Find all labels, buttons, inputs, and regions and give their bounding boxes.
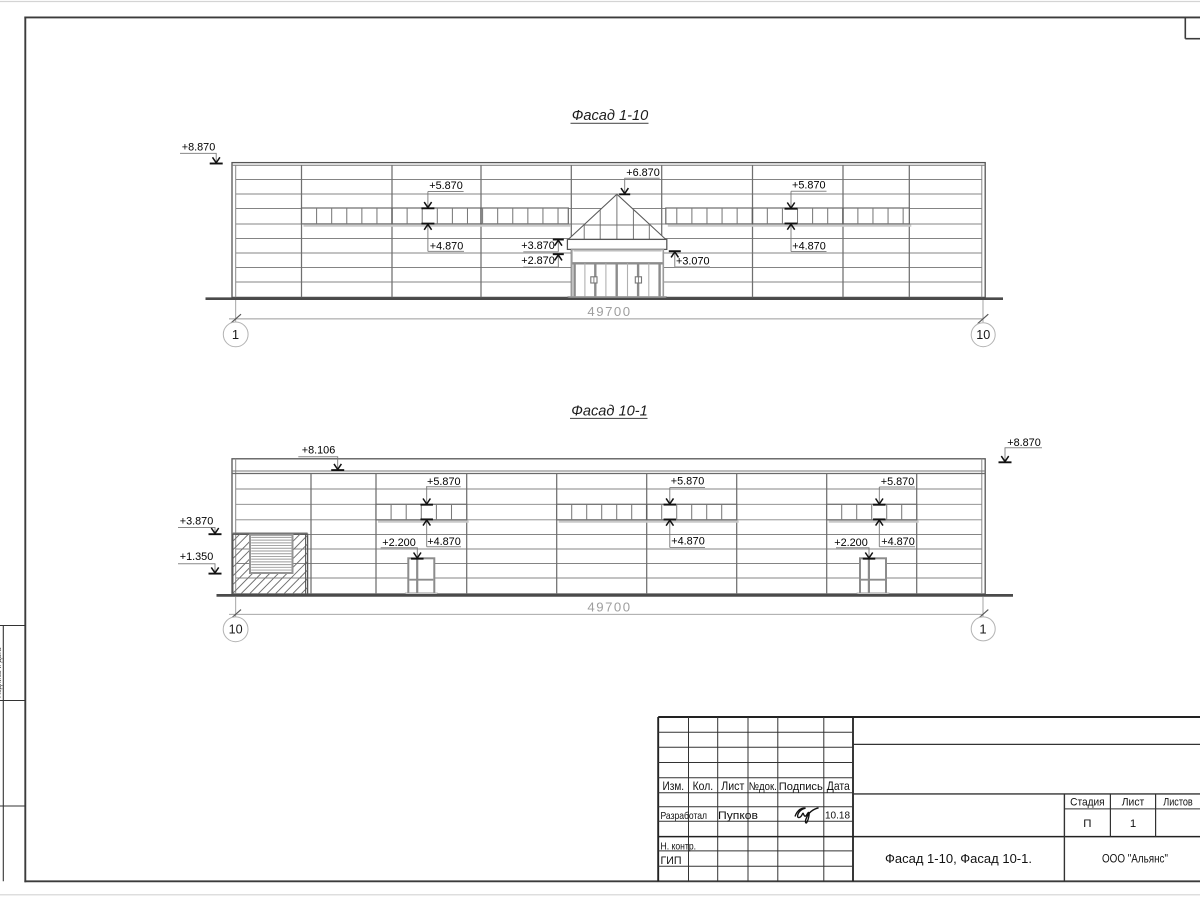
svg-text:+5.870: +5.870 xyxy=(671,475,705,487)
svg-text:ООО "Альянс": ООО "Альянс" xyxy=(1102,852,1168,866)
svg-text:Н. контр.: Н. контр. xyxy=(661,841,697,852)
svg-text:Листов: Листов xyxy=(1163,796,1193,808)
svg-text:49700: 49700 xyxy=(587,304,631,319)
svg-text:+5.870: +5.870 xyxy=(429,180,463,192)
svg-text:П: П xyxy=(1083,818,1091,830)
svg-text:1: 1 xyxy=(979,621,986,636)
svg-text:Лист: Лист xyxy=(721,780,745,793)
svg-text:Фасад 1-10: Фасад 1-10 xyxy=(572,108,648,124)
svg-text:+8.870: +8.870 xyxy=(182,142,216,154)
svg-text:+8.106: +8.106 xyxy=(302,444,336,456)
svg-text:1: 1 xyxy=(1130,818,1136,830)
svg-text:ГИП: ГИП xyxy=(661,855,682,867)
svg-text:Изм.: Изм. xyxy=(663,780,685,793)
svg-text:10: 10 xyxy=(229,623,243,637)
svg-text:+2.870: +2.870 xyxy=(521,255,555,267)
svg-text:Фасад 10-1: Фасад 10-1 xyxy=(571,403,647,419)
svg-text:1: 1 xyxy=(232,327,239,342)
svg-text:+5.870: +5.870 xyxy=(792,180,826,192)
svg-text:Стадия: Стадия xyxy=(1070,796,1105,808)
svg-text:Кол.: Кол. xyxy=(693,780,714,793)
svg-text:+4.870: +4.870 xyxy=(792,240,826,252)
svg-text:+5.870: +5.870 xyxy=(881,476,915,488)
svg-text:Дата: Дата xyxy=(827,780,850,793)
svg-text:Пупков: Пупков xyxy=(718,810,758,822)
svg-text:49700: 49700 xyxy=(587,599,631,614)
svg-text:10: 10 xyxy=(976,328,990,342)
svg-text:+4.870: +4.870 xyxy=(430,240,464,252)
svg-text:Фасад 1-10, Фасад 10-1.: Фасад 1-10, Фасад 10-1. xyxy=(885,851,1032,866)
svg-text:10.18: 10.18 xyxy=(825,810,850,821)
svg-text:+3.870: +3.870 xyxy=(521,240,555,252)
svg-text:Лист: Лист xyxy=(1122,796,1145,808)
svg-text:№док.: №док. xyxy=(749,781,777,793)
svg-text:Разработал: Разработал xyxy=(661,810,708,822)
svg-text:+1.350: +1.350 xyxy=(180,551,214,563)
svg-text:Подпись: Подпись xyxy=(779,781,823,793)
svg-text:+3.070: +3.070 xyxy=(676,255,710,267)
svg-text:Подпись и дата: Подпись и дата xyxy=(0,648,3,698)
svg-text:+3.870: +3.870 xyxy=(180,515,214,527)
svg-text:+6.870: +6.870 xyxy=(626,167,660,179)
svg-text:+4.870: +4.870 xyxy=(671,535,705,547)
